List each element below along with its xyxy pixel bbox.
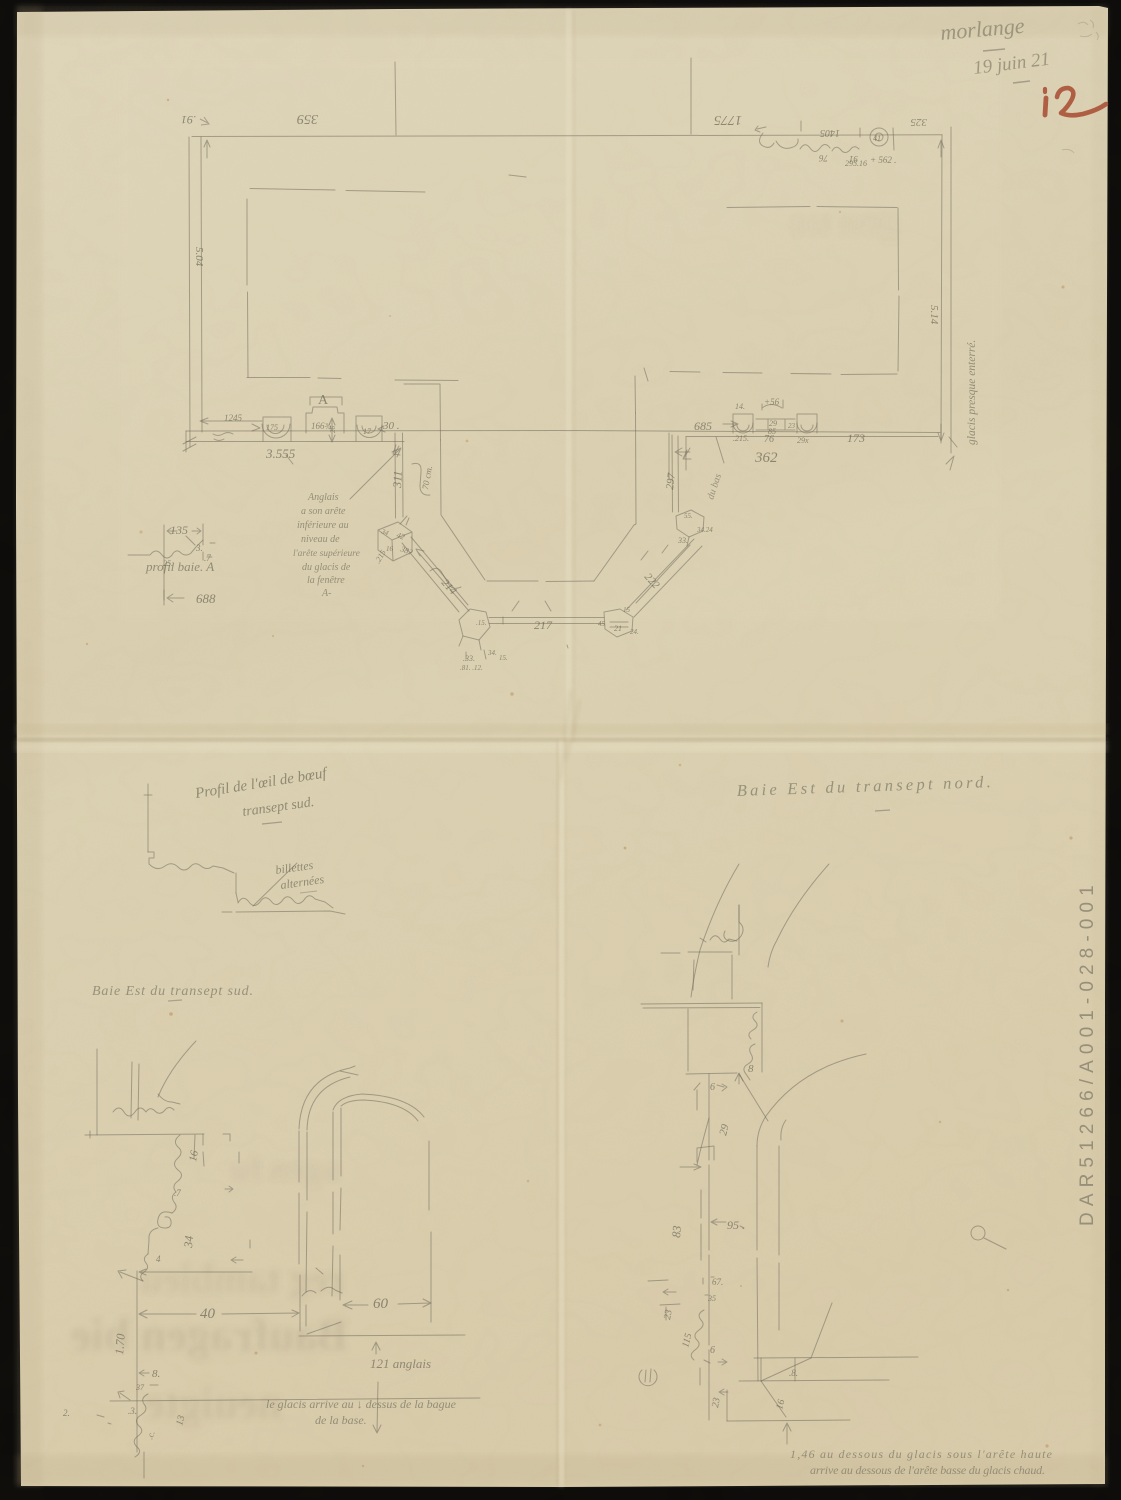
svg-text:6: 6 <box>710 1345 715 1356</box>
svg-text:1245: 1245 <box>224 413 243 423</box>
svg-text:67.: 67. <box>712 1277 723 1287</box>
svg-text:23: 23 <box>662 1309 675 1321</box>
svg-text:.81. .12.: .81. .12. <box>460 664 483 672</box>
svg-text:8.: 8. <box>152 1368 160 1380</box>
svg-text:DAR51266/A001-028-001: DAR51266/A001-028-001 <box>1077 879 1098 1226</box>
svg-text:30 .: 30 . <box>382 420 400 432</box>
svg-text:2.: 2. <box>63 1408 70 1418</box>
svg-text:Anglais: Anglais <box>307 492 339 503</box>
svg-text:35: 35 <box>707 1294 716 1303</box>
svg-text:.215.: .215. <box>733 434 749 443</box>
svg-text:A: A <box>318 393 329 408</box>
svg-text:17: 17 <box>363 427 372 436</box>
svg-text:55.: 55. <box>684 512 693 520</box>
svg-text:a son arête: a son arête <box>301 506 346 517</box>
svg-text:40: 40 <box>200 1306 216 1322</box>
svg-text:297: 297 <box>664 472 678 490</box>
svg-text:profil baie. A: profil baie. A <box>145 559 214 574</box>
svg-text:34.24: 34.24 <box>696 526 713 534</box>
svg-text:8: 8 <box>748 1063 754 1075</box>
svg-text:175: 175 <box>266 423 278 432</box>
svg-text:.8.: .8. <box>789 1368 798 1378</box>
svg-text:16: 16 <box>386 545 394 553</box>
svg-text:la fenêtre: la fenêtre <box>307 575 345 586</box>
svg-text:83: 83 <box>669 1225 684 1238</box>
svg-text:34.: 34. <box>487 649 497 657</box>
svg-text:Baie Est du transept sud.: Baie Est du transept sud. <box>92 984 253 999</box>
svg-text:37: 37 <box>135 1383 145 1392</box>
svg-text:neuigte: neuigte <box>145 1379 282 1428</box>
svg-text:3.: 3. <box>195 543 203 553</box>
svg-text:de la base.: de la base. <box>315 1413 367 1427</box>
svg-text:.15.: .15. <box>476 619 487 627</box>
svg-text:311: 311 <box>390 470 405 489</box>
svg-text:33.: 33. <box>677 536 688 545</box>
svg-text:60: 60 <box>373 1296 389 1312</box>
svg-text:l'arête supérieure: l'arête supérieure <box>293 549 360 559</box>
svg-text:362: 362 <box>754 450 778 466</box>
svg-text:A-: A- <box>321 588 331 599</box>
svg-text:ugen fu: ugen fu <box>231 1151 340 1188</box>
svg-text:217: 217 <box>534 618 553 632</box>
svg-text:+ 562 .: + 562 . <box>870 155 896 165</box>
svg-text:3.555: 3.555 <box>265 446 296 461</box>
svg-text:23: 23 <box>710 1397 723 1409</box>
svg-text:reg tambieu: reg tambieu <box>140 1256 345 1301</box>
svg-text:niveau de: niveau de <box>301 534 340 545</box>
svg-text:173: 173 <box>847 431 865 445</box>
svg-text:76: 76 <box>764 434 774 445</box>
svg-text:arrive au dessous de l'arête b: arrive au dessous de l'arête basse du gl… <box>810 1463 1045 1477</box>
svg-text:95 .: 95 . <box>727 1218 745 1232</box>
svg-text:1,46 au dessous du glacis sou: 1,46 au dessous du glacis sous l'arête h… <box>790 1447 1053 1461</box>
svg-text:29x: 29x <box>797 436 809 445</box>
svg-text:5.04: 5.04 <box>193 247 205 267</box>
svg-text:685: 685 <box>694 419 712 433</box>
svg-text:359: 359 <box>297 111 319 126</box>
svg-text:15.: 15. <box>499 654 508 662</box>
svg-text:34: 34 <box>181 1235 196 1249</box>
svg-text:1405: 1405 <box>820 127 840 138</box>
svg-text:45: 45 <box>598 620 606 628</box>
svg-text:glacis presque enterré.: glacis presque enterré. <box>966 340 978 445</box>
svg-text:du glacis de: du glacis de <box>302 562 351 573</box>
svg-text:1.70: 1.70 <box>112 1333 128 1355</box>
svg-text:le glacis arrive au ↓ dessus d: le glacis arrive au ↓ dessus de la bague <box>266 1397 457 1411</box>
svg-text:5.14: 5.14 <box>928 305 940 325</box>
svg-text:135: 135 <box>170 523 188 537</box>
svg-text:1775: 1775 <box>714 112 742 127</box>
svg-text:26: 26 <box>329 426 337 434</box>
svg-text:325: 325 <box>910 116 928 128</box>
svg-text:15: 15 <box>623 606 631 614</box>
svg-text:24.: 24. <box>630 628 639 636</box>
svg-text:.3.: .3. <box>128 1406 137 1416</box>
svg-text:23: 23 <box>788 422 796 430</box>
svg-text:.91: .91 <box>181 113 196 127</box>
svg-text:14.: 14. <box>735 402 745 411</box>
svg-text:4: 4 <box>156 1254 161 1264</box>
svg-text:inférieure au: inférieure au <box>297 520 349 531</box>
svg-text:688: 688 <box>196 591 216 606</box>
svg-text:.7: .7 <box>174 1188 181 1198</box>
svg-text:41: 41 <box>873 134 881 143</box>
svg-text:21: 21 <box>614 624 622 633</box>
svg-text:121 anglais: 121 anglais <box>370 1356 431 1371</box>
svg-text:6: 6 <box>710 1082 715 1093</box>
svg-text:76: 76 <box>819 153 829 163</box>
svg-text:295.16: 295.16 <box>845 159 867 168</box>
svg-text:gen ue: gen ue <box>790 199 900 244</box>
svg-text:.33.: .33. <box>463 654 475 663</box>
svg-text:+56: +56 <box>764 397 780 407</box>
